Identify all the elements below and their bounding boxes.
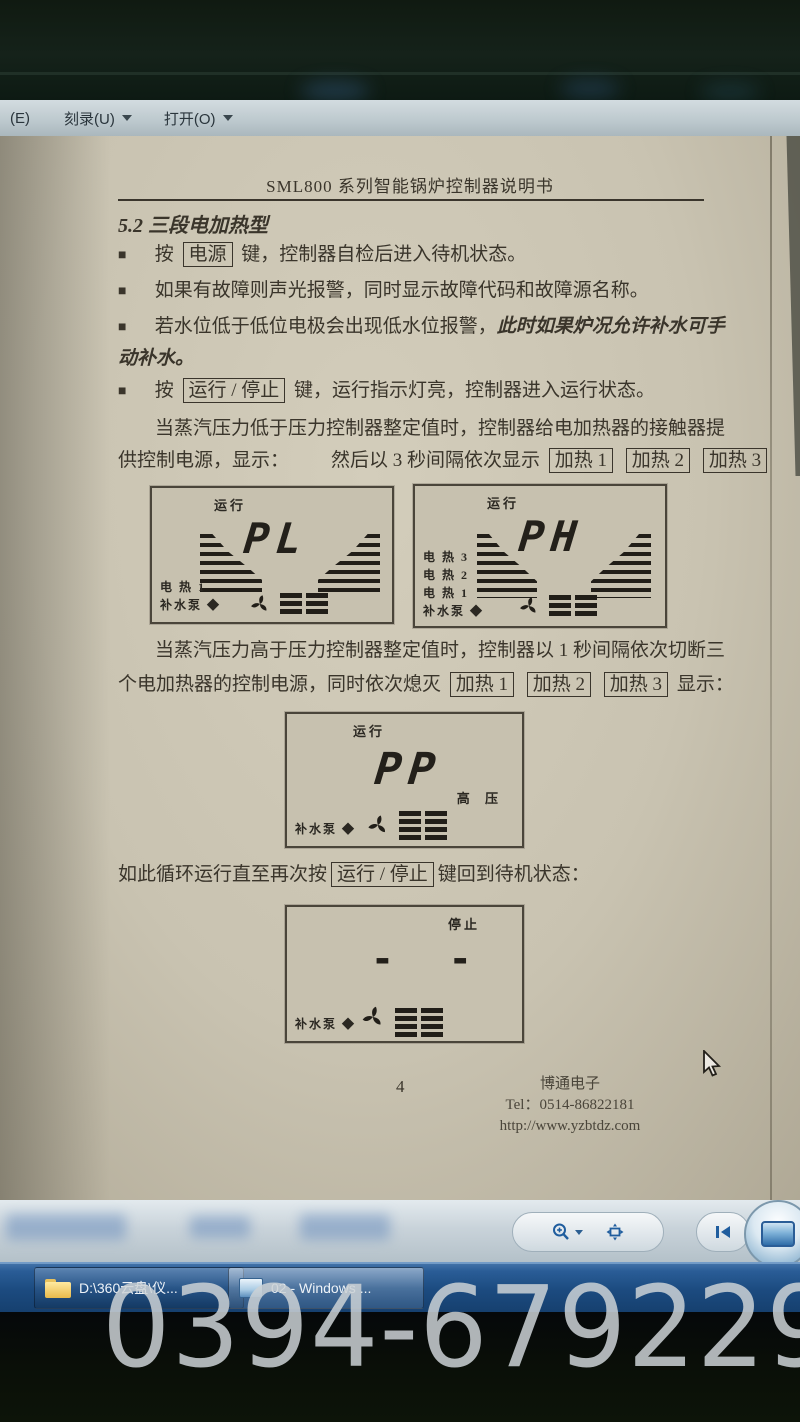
- photo-viewer-menubar: (E) 刻录(U) 打开(O): [0, 100, 800, 137]
- zoom-button[interactable]: [545, 1213, 589, 1251]
- lcd-stop-label: 停止: [448, 914, 480, 933]
- lcd-figure-standby: 停止 - - 补水泵 ◆: [285, 905, 524, 1043]
- lcd-value-pp: PP: [372, 744, 444, 795]
- lcd-value-ph: PH: [516, 512, 586, 561]
- previous-button[interactable]: [707, 1213, 739, 1251]
- screen-reflection: [6, 1214, 126, 1240]
- lcd-high-pressure-label: 高 压: [457, 788, 504, 807]
- bullet-icon: ■: [118, 379, 150, 405]
- pump-fan-icon: [359, 1003, 387, 1031]
- pump-fan-icon: [365, 812, 391, 838]
- para2-line1: 当蒸汽压力高于压力控制器整定值时，控制器以 1 秒间隔依次切断三: [155, 638, 725, 664]
- lcd-run-label: 运行: [353, 721, 385, 740]
- lcd-value-dashes: - -: [371, 937, 488, 981]
- screen-reflection: [560, 80, 620, 98]
- lcd-figure-high-pressure-run: 运行 PH 电 热 3 电 热 2 电 热 1 补水泵 ◆: [413, 484, 667, 628]
- lcd-heat3-label: 电 热 3: [423, 548, 484, 566]
- photo-icon: [761, 1221, 795, 1247]
- section-heading: 5.2 三段电加热型: [118, 209, 268, 238]
- bullet1-pre: 按: [155, 244, 174, 265]
- lcd-run-label: 运行: [487, 493, 519, 512]
- lcd-pump-label: 补水泵 ◆: [423, 602, 484, 620]
- page-corner-shadow: [770, 136, 800, 476]
- para2-line2-pre: 个电加热器的控制电源，同时依次熄灭: [118, 674, 441, 695]
- lcd-value-pl: PL: [241, 514, 311, 563]
- screen-reflection: [700, 84, 760, 100]
- footer-company: 博通电子: [430, 1074, 710, 1095]
- manual-header-title: SML800 系列智能锅炉控制器说明书: [120, 172, 700, 197]
- actual-size-icon: [605, 1222, 625, 1242]
- bullet3-continuation: 动补水。: [118, 346, 194, 372]
- screen-reflection: [300, 1214, 390, 1240]
- heat1-key-label: 加热 1: [450, 672, 514, 697]
- pump-fan-icon: [248, 592, 272, 616]
- lcd-level-bars-right: [591, 534, 651, 598]
- footer-tel: Tel：0514-86822181: [430, 1095, 710, 1116]
- lcd-figure-over-pressure: 运行 PP 高 压 补水泵 ◆: [285, 712, 524, 848]
- para1-line2-mid: 然后以 3 秒间隔依次显示: [331, 450, 540, 471]
- water-tank-icon: [549, 595, 597, 616]
- menu-email-label: (E): [10, 110, 30, 127]
- next-slideshow-button[interactable]: [744, 1200, 800, 1268]
- bullet3-text: 若水位低于低位电极会出现低水位报警，: [155, 316, 497, 337]
- previous-icon: [713, 1223, 733, 1241]
- para3-post: 键回到待机状态：: [438, 864, 590, 885]
- screen-reflection: [300, 82, 370, 100]
- lcd-run-label: 运行: [214, 495, 246, 514]
- heat3-key-label: 加热 3: [703, 448, 767, 473]
- water-tank-icon: [280, 593, 328, 614]
- chevron-down-icon: [122, 115, 132, 121]
- lcd-level-bars-right: [318, 534, 380, 596]
- bezel-edge-highlight: [0, 72, 800, 75]
- watermark-phone-number: 0394-6792297: [102, 1263, 800, 1393]
- menu-open-label: 打开(O): [164, 108, 216, 129]
- power-key-label: 电源: [183, 242, 233, 267]
- page-number: 4: [396, 1074, 405, 1100]
- para1-line2-pre: 供控制电源，显示：: [118, 450, 289, 471]
- menu-item-open[interactable]: 打开(O): [154, 100, 243, 136]
- para3-pre: 如此循环运行直至再次按: [118, 864, 327, 885]
- para2-line2-post: 显示：: [677, 674, 734, 695]
- menu-item-email-partial[interactable]: (E): [0, 100, 40, 136]
- heat2-key-label: 加热 2: [626, 448, 690, 473]
- run-stop-key-label: 运行 / 停止: [331, 862, 434, 887]
- heat2-key-label: 加热 2: [527, 672, 591, 697]
- bullet2-text: 如果有故障则声光报警，同时显示故障代码和故障源名称。: [155, 280, 649, 301]
- lcd-pump-label: 补水泵 ◆: [295, 1015, 356, 1033]
- footer-url: http://www.yzbtdz.com: [430, 1116, 710, 1137]
- bullet4-post: 键，运行指示灯亮，控制器进入运行状态。: [294, 380, 655, 401]
- bullet4-pre: 按: [155, 380, 174, 401]
- lcd-heat2-label: 电 热 2: [423, 566, 484, 584]
- lcd-heat1-label: 电 热 1: [160, 578, 221, 596]
- menu-burn-label: 刻录(U): [64, 108, 115, 129]
- folder-icon: [45, 1279, 71, 1298]
- magnifier-plus-icon: [551, 1222, 571, 1242]
- pump-fan-icon: [517, 594, 541, 618]
- page-shadow: [0, 136, 110, 1200]
- lcd-heat1-label: 电 热 1: [423, 584, 484, 602]
- lcd-figure-low-pressure: 运行 PL 电 热 1 补水泵 ◆: [150, 486, 394, 624]
- para1-line1: 当蒸汽压力低于压力控制器整定值时，控制器给电加热器的接触器提: [155, 416, 725, 442]
- manual-page: SML800 系列智能锅炉控制器说明书 5.2 三段电加热型 ■ 按 电源 键，…: [0, 136, 800, 1200]
- actual-size-button[interactable]: [599, 1213, 631, 1251]
- photo-viewer-toolbar: [0, 1200, 800, 1262]
- header-rule: [118, 199, 704, 201]
- water-tank-icon: [395, 1008, 443, 1037]
- chevron-down-icon: [575, 1230, 583, 1235]
- heat3-key-label: 加热 3: [604, 672, 668, 697]
- screen-reflection: [190, 1216, 250, 1238]
- bullet1-post: 键，控制器自检后进入待机状态。: [241, 244, 526, 265]
- heat1-key-label: 加热 1: [549, 448, 613, 473]
- bullet-icon: ■: [118, 243, 150, 269]
- photo-of-monitor: (E) 刻录(U) 打开(O) SML800 系列智能锅炉控制器说明书 5.2 …: [0, 0, 800, 1422]
- run-stop-key-label: 运行 / 停止: [183, 378, 286, 403]
- bullet3-italic: 此时如果炉况允许补水可手: [497, 316, 725, 337]
- page-crease: [770, 136, 772, 1200]
- chevron-down-icon: [223, 115, 233, 121]
- monitor-top-bezel: [0, 0, 800, 100]
- mouse-cursor-icon: [702, 1050, 724, 1080]
- lcd-pump-label: 补水泵 ◆: [295, 820, 356, 838]
- menu-item-burn[interactable]: 刻录(U): [54, 100, 142, 136]
- water-tank-icon: [399, 811, 447, 840]
- bullet-icon: ■: [118, 279, 150, 305]
- lcd-pump-label: 补水泵 ◆: [160, 596, 221, 614]
- bullet-icon: ■: [118, 315, 150, 341]
